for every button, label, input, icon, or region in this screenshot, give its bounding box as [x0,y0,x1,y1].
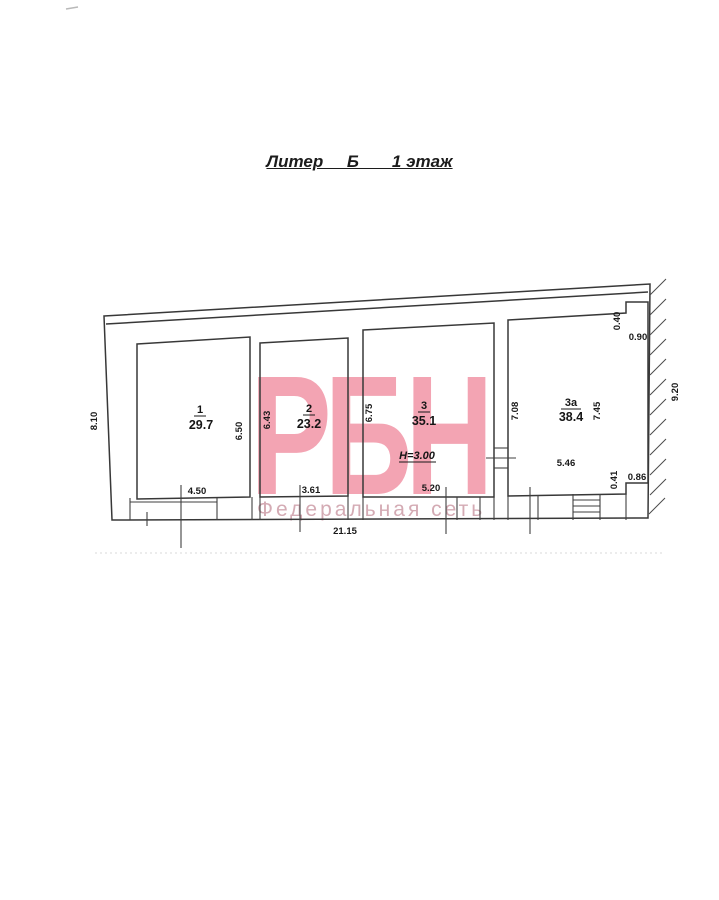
dim-notch-top-h: 0.90 [629,332,648,343]
floor-plan-drawing: 1 29.7 2 23.2 3 35.1 Н=3.00 3а 38.4 8.10… [0,0,719,900]
dim-room1-height: 6.50 [234,422,245,441]
dim-room3-height: 6.75 [364,403,375,422]
room3-room3a-opening [486,448,516,468]
room-3a-number: 3а [565,397,578,409]
dim-room3a-right-height: 7.45 [592,401,603,420]
wall-hatching [649,279,666,514]
room-3-outline [363,323,494,497]
dim-room3a-width: 5.46 [557,458,576,469]
room-3-area: 35.1 [412,414,436,428]
dim-notch-top-v: 0.40 [612,312,623,331]
room-3a-label: 3а 38.4 [559,397,583,424]
room-3-height-note: Н=3.00 [399,450,436,462]
room-3-number: 3 [421,400,427,412]
dim-room3-width: 5.20 [422,483,441,494]
dimension-labels: 8.10 9.20 6.50 4.50 6.43 3.61 6.75 5.20 … [89,312,681,537]
dim-notch-bottom-v: 0.41 [609,470,620,489]
dim-notch-bottom-h: 0.86 [628,472,647,483]
inner-top-wall [106,292,648,324]
dim-left-height: 8.10 [89,412,100,431]
room-1-area: 29.7 [189,418,213,432]
room-3a-area: 38.4 [559,410,583,424]
dim-room2-height: 6.43 [262,411,273,430]
dim-total-width: 21.15 [333,526,357,537]
stairs-symbol [573,500,600,512]
room-3a-outline [508,302,648,496]
room-1-label: 1 29.7 [189,404,213,432]
dim-room1-width: 4.50 [188,486,207,497]
room-2-area: 23.2 [297,417,321,431]
dim-room2-width: 3.61 [302,485,321,496]
room-2-label: 2 23.2 [297,403,321,431]
scan-speck [66,7,78,9]
dim-room3a-left-height: 7.08 [510,402,521,421]
dim-right-height: 9.20 [670,383,681,402]
floor-plan-page: РБН Федеральная сеть Литер Б 1 этаж [0,0,719,900]
room-1-number: 1 [197,404,203,416]
room-3-label: 3 35.1 Н=3.00 [399,400,436,462]
room-2-number: 2 [306,403,312,415]
